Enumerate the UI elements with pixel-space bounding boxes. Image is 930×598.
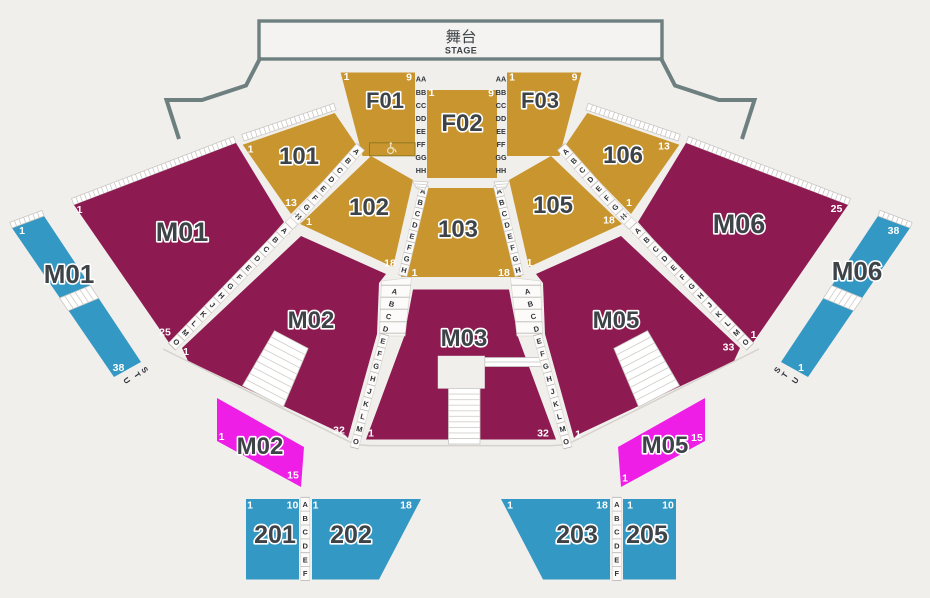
- svg-text:13: 13: [658, 141, 670, 153]
- svg-text:15: 15: [287, 470, 299, 482]
- svg-text:EE: EE: [496, 127, 506, 136]
- svg-text:M06: M06: [832, 256, 883, 286]
- svg-text:B: B: [302, 514, 308, 523]
- svg-text:E: E: [303, 555, 308, 564]
- svg-text:E: E: [614, 555, 619, 564]
- svg-text:1: 1: [507, 500, 513, 512]
- svg-text:HH: HH: [416, 166, 426, 175]
- svg-text:105: 105: [533, 192, 573, 219]
- svg-text:1: 1: [77, 204, 83, 216]
- svg-text:25: 25: [831, 203, 843, 215]
- svg-text:1: 1: [19, 225, 25, 237]
- svg-text:9: 9: [572, 72, 578, 84]
- svg-text:DD: DD: [496, 114, 506, 123]
- svg-text:1: 1: [344, 71, 350, 83]
- svg-text:GG: GG: [415, 153, 427, 162]
- svg-text:HH: HH: [496, 166, 506, 175]
- svg-text:18: 18: [384, 258, 396, 270]
- svg-text:M05: M05: [642, 432, 689, 459]
- svg-text:1: 1: [183, 346, 189, 358]
- svg-text:M06: M06: [713, 209, 766, 239]
- svg-text:202: 202: [330, 521, 372, 549]
- svg-text:1: 1: [219, 431, 225, 443]
- svg-text:1: 1: [247, 500, 253, 512]
- svg-text:F02: F02: [441, 110, 482, 137]
- svg-text:D: D: [302, 542, 308, 551]
- svg-text:C: C: [302, 528, 308, 537]
- svg-text:F: F: [303, 569, 308, 578]
- svg-text:203: 203: [556, 521, 598, 549]
- svg-text:201: 201: [254, 521, 296, 549]
- svg-text:M02: M02: [237, 433, 284, 460]
- svg-text:32: 32: [537, 428, 549, 440]
- svg-text:CC: CC: [496, 101, 506, 110]
- svg-text:F: F: [615, 569, 620, 578]
- svg-text:1: 1: [306, 216, 312, 228]
- svg-text:STAGE: STAGE: [445, 46, 477, 56]
- svg-text:38: 38: [888, 225, 900, 237]
- svg-text:1: 1: [626, 197, 632, 209]
- svg-text:15: 15: [691, 432, 703, 444]
- svg-text:1: 1: [622, 473, 628, 485]
- svg-text:M05: M05: [593, 307, 640, 334]
- svg-text:33: 33: [723, 342, 735, 354]
- svg-text:A: A: [302, 500, 308, 509]
- svg-text:205: 205: [626, 521, 668, 549]
- svg-text:25: 25: [159, 327, 171, 339]
- svg-text:9: 9: [488, 88, 494, 100]
- svg-text:1: 1: [248, 144, 254, 156]
- svg-text:18: 18: [603, 215, 615, 227]
- svg-text:C: C: [614, 528, 620, 537]
- svg-text:AA: AA: [416, 75, 426, 84]
- svg-text:EE: EE: [416, 127, 426, 136]
- svg-text:B: B: [614, 514, 620, 523]
- svg-text:D: D: [614, 542, 620, 551]
- svg-text:BB: BB: [496, 88, 506, 97]
- svg-text:102: 102: [349, 194, 389, 221]
- svg-text:1: 1: [412, 267, 418, 279]
- svg-text:M03: M03: [441, 325, 488, 352]
- svg-text:32: 32: [333, 425, 345, 437]
- svg-text:1: 1: [751, 329, 757, 341]
- svg-text:1: 1: [429, 87, 435, 99]
- svg-text:38: 38: [113, 362, 125, 374]
- svg-text:18: 18: [498, 267, 510, 279]
- svg-text:10: 10: [662, 500, 674, 512]
- svg-text:M01: M01: [156, 217, 209, 247]
- svg-text:1: 1: [313, 500, 319, 512]
- svg-text:A: A: [614, 500, 620, 509]
- svg-text:BB: BB: [416, 88, 426, 97]
- svg-text:1: 1: [575, 429, 581, 441]
- svg-text:M02: M02: [288, 307, 335, 334]
- svg-text:CC: CC: [416, 101, 426, 110]
- svg-text:F01: F01: [366, 88, 404, 113]
- svg-text:AA: AA: [496, 75, 506, 84]
- svg-text:FF: FF: [417, 140, 426, 149]
- svg-text:M01: M01: [44, 259, 95, 289]
- svg-text:1: 1: [527, 257, 533, 269]
- svg-text:18: 18: [400, 500, 412, 512]
- svg-text:103: 103: [438, 216, 478, 243]
- svg-text:1: 1: [627, 500, 633, 512]
- svg-text:1: 1: [798, 362, 804, 374]
- svg-text:1: 1: [368, 428, 374, 440]
- svg-text:18: 18: [596, 500, 608, 512]
- svg-text:GG: GG: [495, 153, 507, 162]
- svg-text:FF: FF: [497, 140, 506, 149]
- svg-text:106: 106: [603, 142, 643, 169]
- svg-text:9: 9: [406, 72, 412, 84]
- svg-text:13: 13: [285, 197, 297, 209]
- svg-text:10: 10: [287, 500, 299, 512]
- svg-text:101: 101: [279, 143, 319, 170]
- svg-text:F03: F03: [521, 88, 559, 113]
- svg-text:DD: DD: [416, 114, 426, 123]
- svg-text:1: 1: [509, 72, 515, 84]
